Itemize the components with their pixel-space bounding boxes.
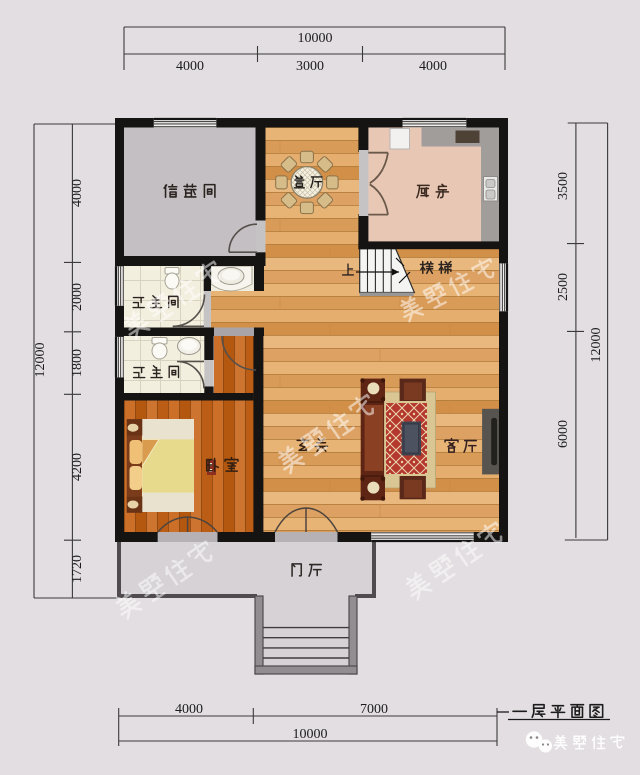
svg-text:3000: 3000 [296, 59, 324, 74]
svg-text:1720: 1720 [70, 555, 85, 583]
svg-text:6000: 6000 [556, 420, 571, 448]
svg-text:3500: 3500 [556, 172, 571, 200]
svg-text:4000: 4000 [70, 179, 85, 207]
svg-text:2500: 2500 [556, 273, 571, 301]
svg-text:10000: 10000 [293, 727, 328, 742]
svg-text:12000: 12000 [589, 328, 604, 363]
svg-text:4000: 4000 [419, 59, 447, 74]
svg-text:12000: 12000 [33, 343, 48, 378]
svg-text:4000: 4000 [175, 702, 203, 717]
svg-text:2000: 2000 [70, 283, 85, 311]
svg-text:4000: 4000 [176, 59, 204, 74]
svg-text:10000: 10000 [298, 31, 333, 46]
svg-text:4200: 4200 [70, 453, 85, 481]
svg-text:7000: 7000 [360, 702, 388, 717]
svg-text:1800: 1800 [70, 349, 85, 377]
